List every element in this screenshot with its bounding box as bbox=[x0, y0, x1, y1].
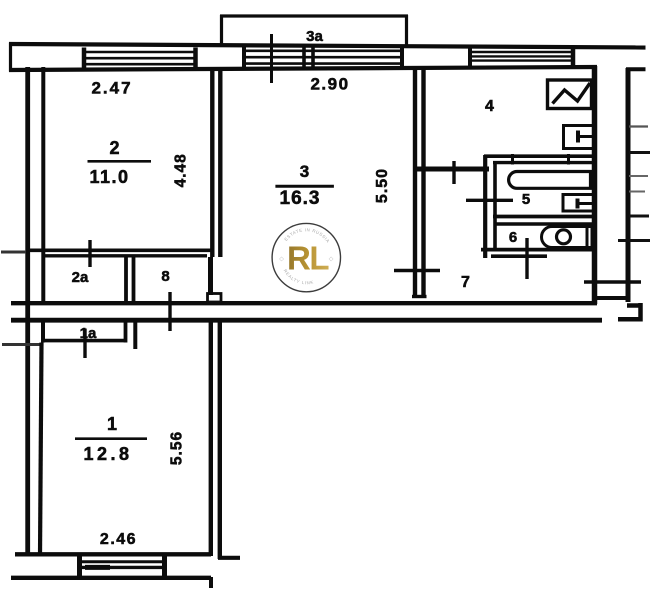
svg-text:8: 8 bbox=[161, 268, 169, 285]
svg-text:5: 5 bbox=[522, 191, 530, 208]
svg-text:4: 4 bbox=[485, 98, 494, 115]
svg-text:2a: 2a bbox=[72, 269, 89, 286]
svg-text:3a: 3a bbox=[306, 28, 323, 45]
svg-text:11.0: 11.0 bbox=[89, 167, 129, 187]
svg-text:2: 2 bbox=[109, 138, 119, 158]
svg-text:12.8: 12.8 bbox=[83, 444, 132, 464]
svg-text:1a: 1a bbox=[80, 325, 97, 342]
svg-text:◇: ◇ bbox=[279, 257, 284, 263]
svg-text:◇: ◇ bbox=[329, 257, 334, 263]
svg-text:16.3: 16.3 bbox=[280, 188, 321, 209]
svg-text:4.48: 4.48 bbox=[173, 153, 190, 187]
svg-text:RL: RL bbox=[287, 240, 329, 277]
svg-text:1: 1 bbox=[107, 414, 117, 434]
svg-text:5.50: 5.50 bbox=[374, 168, 391, 203]
svg-text:2.46: 2.46 bbox=[100, 531, 137, 548]
svg-text:6: 6 bbox=[509, 229, 517, 246]
svg-text:2.47: 2.47 bbox=[91, 79, 132, 98]
svg-text:2.90: 2.90 bbox=[310, 75, 349, 94]
svg-text:3: 3 bbox=[300, 162, 309, 181]
svg-text:7: 7 bbox=[461, 274, 470, 291]
svg-text:5.56: 5.56 bbox=[169, 431, 186, 465]
